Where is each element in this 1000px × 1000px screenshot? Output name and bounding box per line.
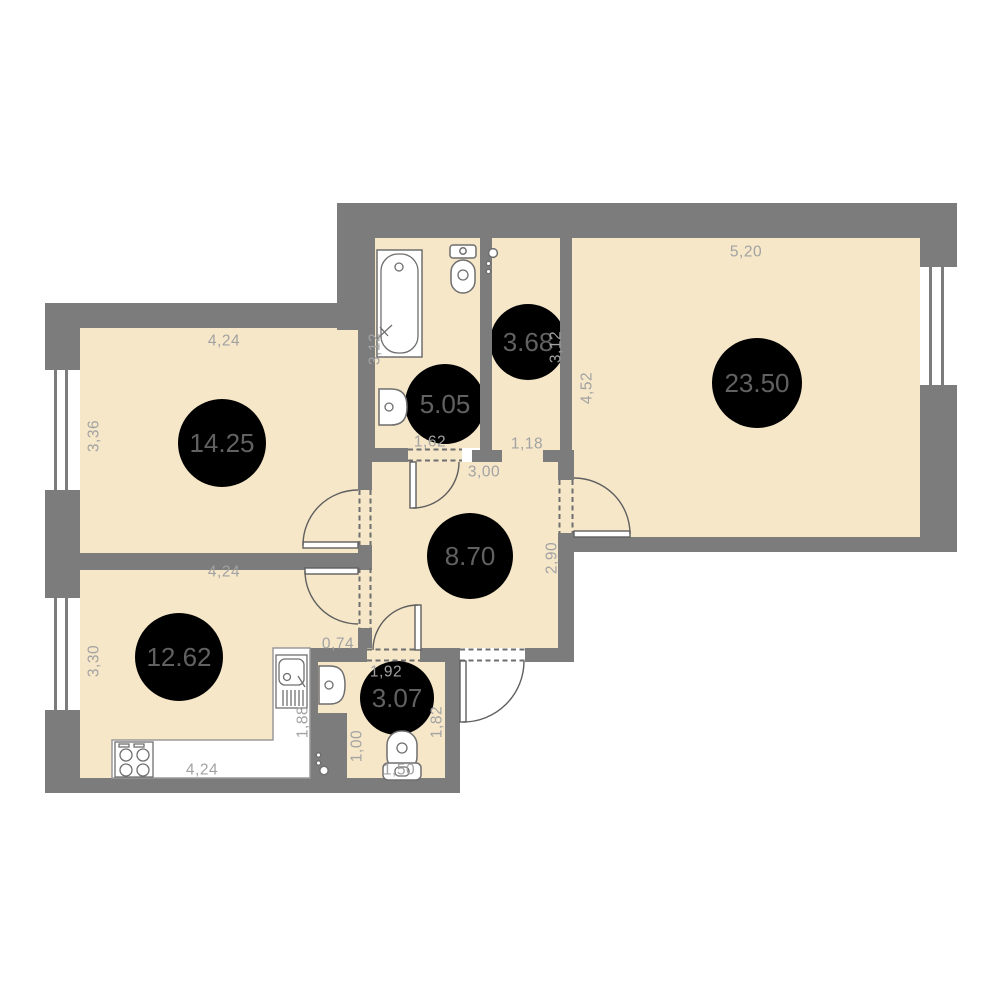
wall-top-outer (337, 203, 957, 238)
dim-r1425-top: 4,24 (208, 333, 240, 350)
window-icon (920, 267, 957, 385)
dim-wc-right: 1,82 (429, 706, 446, 738)
door-leaf-icon (305, 568, 358, 574)
wall-hall-top-a (372, 448, 408, 462)
dim-r1262-top: 4,24 (208, 564, 240, 581)
toilet-icon (450, 245, 476, 293)
dim-bath-bottom: 1,62 (414, 434, 446, 451)
door-arc-icon (463, 661, 524, 722)
room-label-3-07: 3.07 (372, 683, 423, 713)
dim-hall-top: 3,00 (468, 464, 500, 481)
room-label-8-70: 8.70 (445, 541, 496, 571)
dim-wall-segment: 0,74 (322, 636, 354, 653)
wall-hall-left-c (358, 628, 372, 648)
door-leaf-icon (410, 462, 416, 508)
wall-upper-left (337, 203, 375, 330)
dim-r368-bottom: 1,18 (511, 436, 543, 453)
room-label-5-05: 5.05 (420, 389, 471, 419)
wall-hall-top-b (472, 450, 502, 462)
dim-r2350-left: 4,52 (579, 372, 596, 404)
dim-r2350-top: 5,20 (730, 244, 762, 261)
floor-plan-svg: 14.25 5.05 3.68 23.50 8.70 12.62 3.07 4,… (0, 0, 1000, 1000)
room-label-3-68: 3.68 (503, 327, 554, 357)
floor-plan-canvas: 14.25 5.05 3.68 23.50 8.70 12.62 3.07 4,… (0, 0, 1000, 1000)
bathtub-icon (377, 250, 422, 357)
dim-bath-left: 3,12 (367, 333, 384, 365)
door-leaf-icon (303, 542, 358, 548)
door-leaf-icon (460, 661, 466, 722)
wall-bottom-23-50 (558, 537, 957, 552)
room-label-12-62: 12.62 (146, 642, 211, 672)
door-leaf-icon (415, 605, 421, 650)
window-icon (45, 370, 80, 490)
wall-wc-right (445, 662, 460, 793)
wall-hall-bottom-b (420, 648, 460, 662)
wall-hall-bottom-c (525, 648, 574, 662)
wall-hall-right-stub (558, 450, 574, 480)
window-icon (45, 598, 80, 710)
wall-wc-left-lower (310, 713, 347, 778)
dim-r1425-left: 3,36 (86, 420, 103, 452)
wall-wc-left-upper (310, 662, 318, 713)
dim-wc-bottom: 1,50 (383, 762, 415, 779)
wash-basin-icon (319, 666, 345, 704)
door-leaf-icon (574, 531, 630, 537)
door-entrance (460, 648, 525, 722)
dim-hall-right: 2,90 (544, 542, 561, 574)
wall-top-left-block (45, 303, 375, 328)
wash-basin-icon (379, 389, 407, 425)
room-label-14-25: 14.25 (189, 428, 254, 458)
dim-wc-left: 1,00 (349, 730, 366, 762)
wall-hall-left-a (358, 448, 372, 490)
wall-hall-left-b (358, 545, 372, 568)
dim-r1262-left: 3,30 (86, 645, 103, 677)
dim-wc-top: 1,92 (370, 664, 402, 681)
dim-counter-right: 1,88 (295, 706, 312, 738)
dim-counter-bottom: 4,24 (186, 762, 218, 779)
room-label-23-50: 23.50 (724, 368, 789, 398)
dim-r368-right: 3,12 (548, 331, 565, 363)
